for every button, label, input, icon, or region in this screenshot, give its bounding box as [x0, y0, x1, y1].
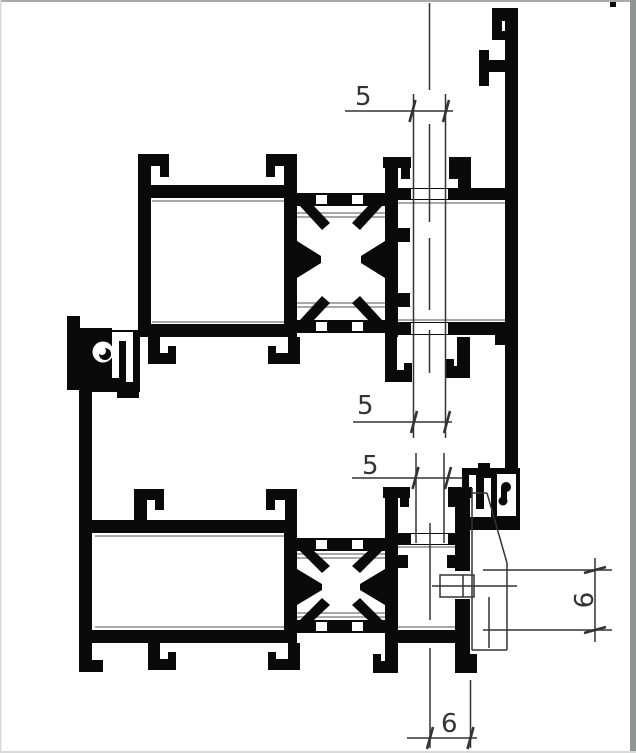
- border-left-edge: [0, 0, 2, 753]
- upper-sash-box: [383, 157, 518, 382]
- drawing-canvas: 5 5 5 6 9: [0, 0, 636, 753]
- border-right-edge: [630, 0, 636, 753]
- upper-thermal-break: [297, 193, 385, 333]
- edge-notch: [610, 2, 616, 7]
- dimension-middle-glass: 5: [353, 391, 452, 433]
- dimension-side-gap: 9: [483, 558, 612, 642]
- dim-label-bottom-gap: 6: [441, 709, 458, 739]
- right-jamb-profile: [478, 8, 518, 523]
- right-jamb-clip: [462, 468, 520, 530]
- dim-label-middle-glass: 5: [357, 391, 374, 421]
- dimension-bottom-gap: 6: [407, 680, 477, 749]
- dim-label-upper-glass: 5: [355, 82, 372, 112]
- frame-walls: [82, 489, 300, 670]
- dim-label-side-gap: 9: [567, 592, 597, 609]
- thermal-break-fingers: [297, 538, 385, 633]
- profile-section-drawing: 5 5 5 6 9: [0, 0, 636, 753]
- clip-curl-stem: [501, 487, 507, 503]
- border-top-edge: [0, 0, 636, 2]
- right-jamb-body: [478, 8, 518, 523]
- lower-frame-box: [82, 489, 300, 670]
- gasket-lines: [152, 201, 284, 322]
- upper-frame-box: [138, 154, 300, 364]
- clip-gasket-hole: [98, 347, 106, 355]
- lower-thermal-break: [297, 538, 385, 633]
- dim-label-lower-glass: 5: [362, 451, 379, 481]
- dimension-upper-glass: 5: [345, 82, 453, 122]
- lower-sash-box: [373, 487, 477, 673]
- left-jamb-clip: [88, 330, 140, 392]
- thermal-break-slots: [316, 195, 363, 331]
- sash-walls: [383, 157, 518, 382]
- thermal-break-fingers: [297, 193, 385, 333]
- frame-walls: [138, 154, 300, 364]
- dimension-lower-glass: 5: [352, 451, 463, 489]
- gasket-lines: [95, 536, 284, 627]
